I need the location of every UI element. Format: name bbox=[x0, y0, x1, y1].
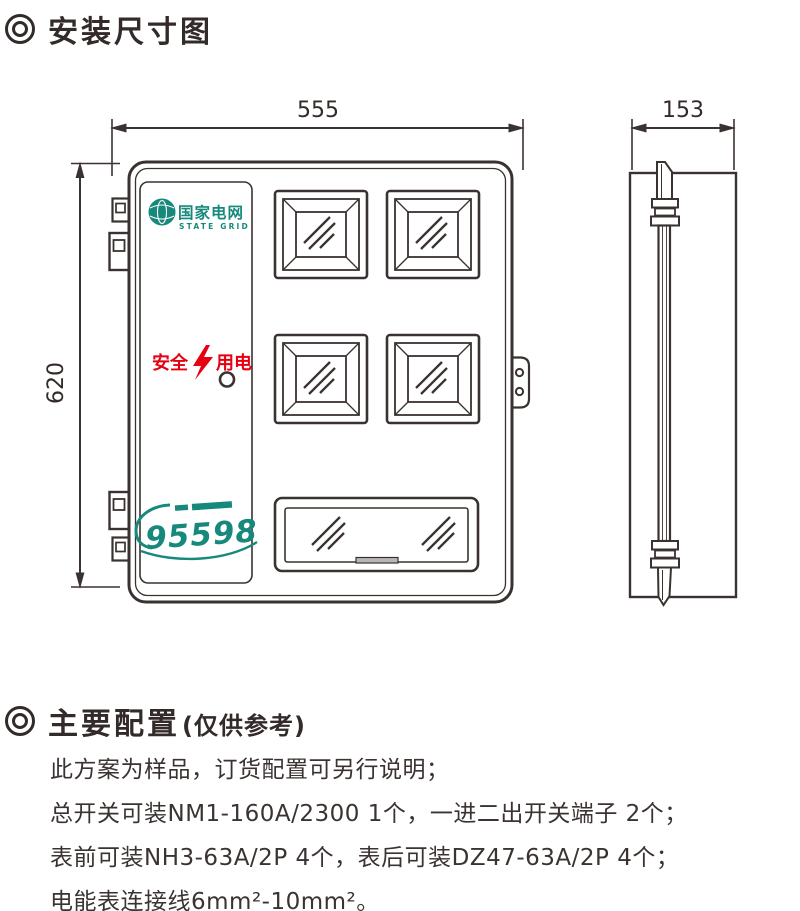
config-line: 电能表连接线6mm²-10mm²。 bbox=[50, 880, 790, 911]
config-title: 主要配置 bbox=[48, 699, 180, 743]
config-title-note: (仅供参考) bbox=[182, 706, 306, 741]
state-grid-cn-label: 国家电网 bbox=[178, 203, 244, 222]
config-line: 总开关可装NM1-160A/2300 1个，一进二出开关端子 2个； bbox=[50, 792, 790, 836]
config-text: 此方案为样品，订货配置可另行说明； 总开关可装NM1-160A/2300 1个，… bbox=[50, 748, 790, 911]
lock-hole bbox=[220, 373, 234, 387]
side-view bbox=[630, 162, 736, 605]
config-section-header: 主要配置 (仅供参考) bbox=[5, 699, 306, 743]
window-tab bbox=[356, 558, 398, 564]
safety-label-left: 安全 bbox=[152, 352, 189, 374]
dimension-height-label: 620 bbox=[44, 362, 69, 404]
side-body bbox=[630, 173, 736, 597]
safety-label-right: 用电 bbox=[216, 352, 252, 374]
dimension-depth-label: 153 bbox=[662, 98, 704, 123]
dimension-width-label: 555 bbox=[297, 98, 339, 123]
page: 安装尺寸图 555 620 153 bbox=[0, 0, 800, 911]
config-line: 表前可装NH3-63A/2P 4个，表后可装DZ47-63A/2P 4个； bbox=[50, 836, 790, 880]
state-grid-en-label: STATE GRID bbox=[179, 222, 250, 231]
front-view: 国家电网 STATE GRID 安全 用电 95598 bbox=[110, 162, 530, 602]
config-line: 此方案为样品，订货配置可另行说明； bbox=[50, 748, 790, 792]
dimension-depth-153 bbox=[632, 119, 734, 170]
hinge-bottom-large bbox=[110, 492, 131, 529]
installation-drawing: 555 620 153 bbox=[0, 0, 800, 665]
hinge-top-large bbox=[110, 233, 131, 270]
state-grid-emblem-icon bbox=[149, 199, 176, 226]
bullseye-icon bbox=[5, 706, 35, 736]
